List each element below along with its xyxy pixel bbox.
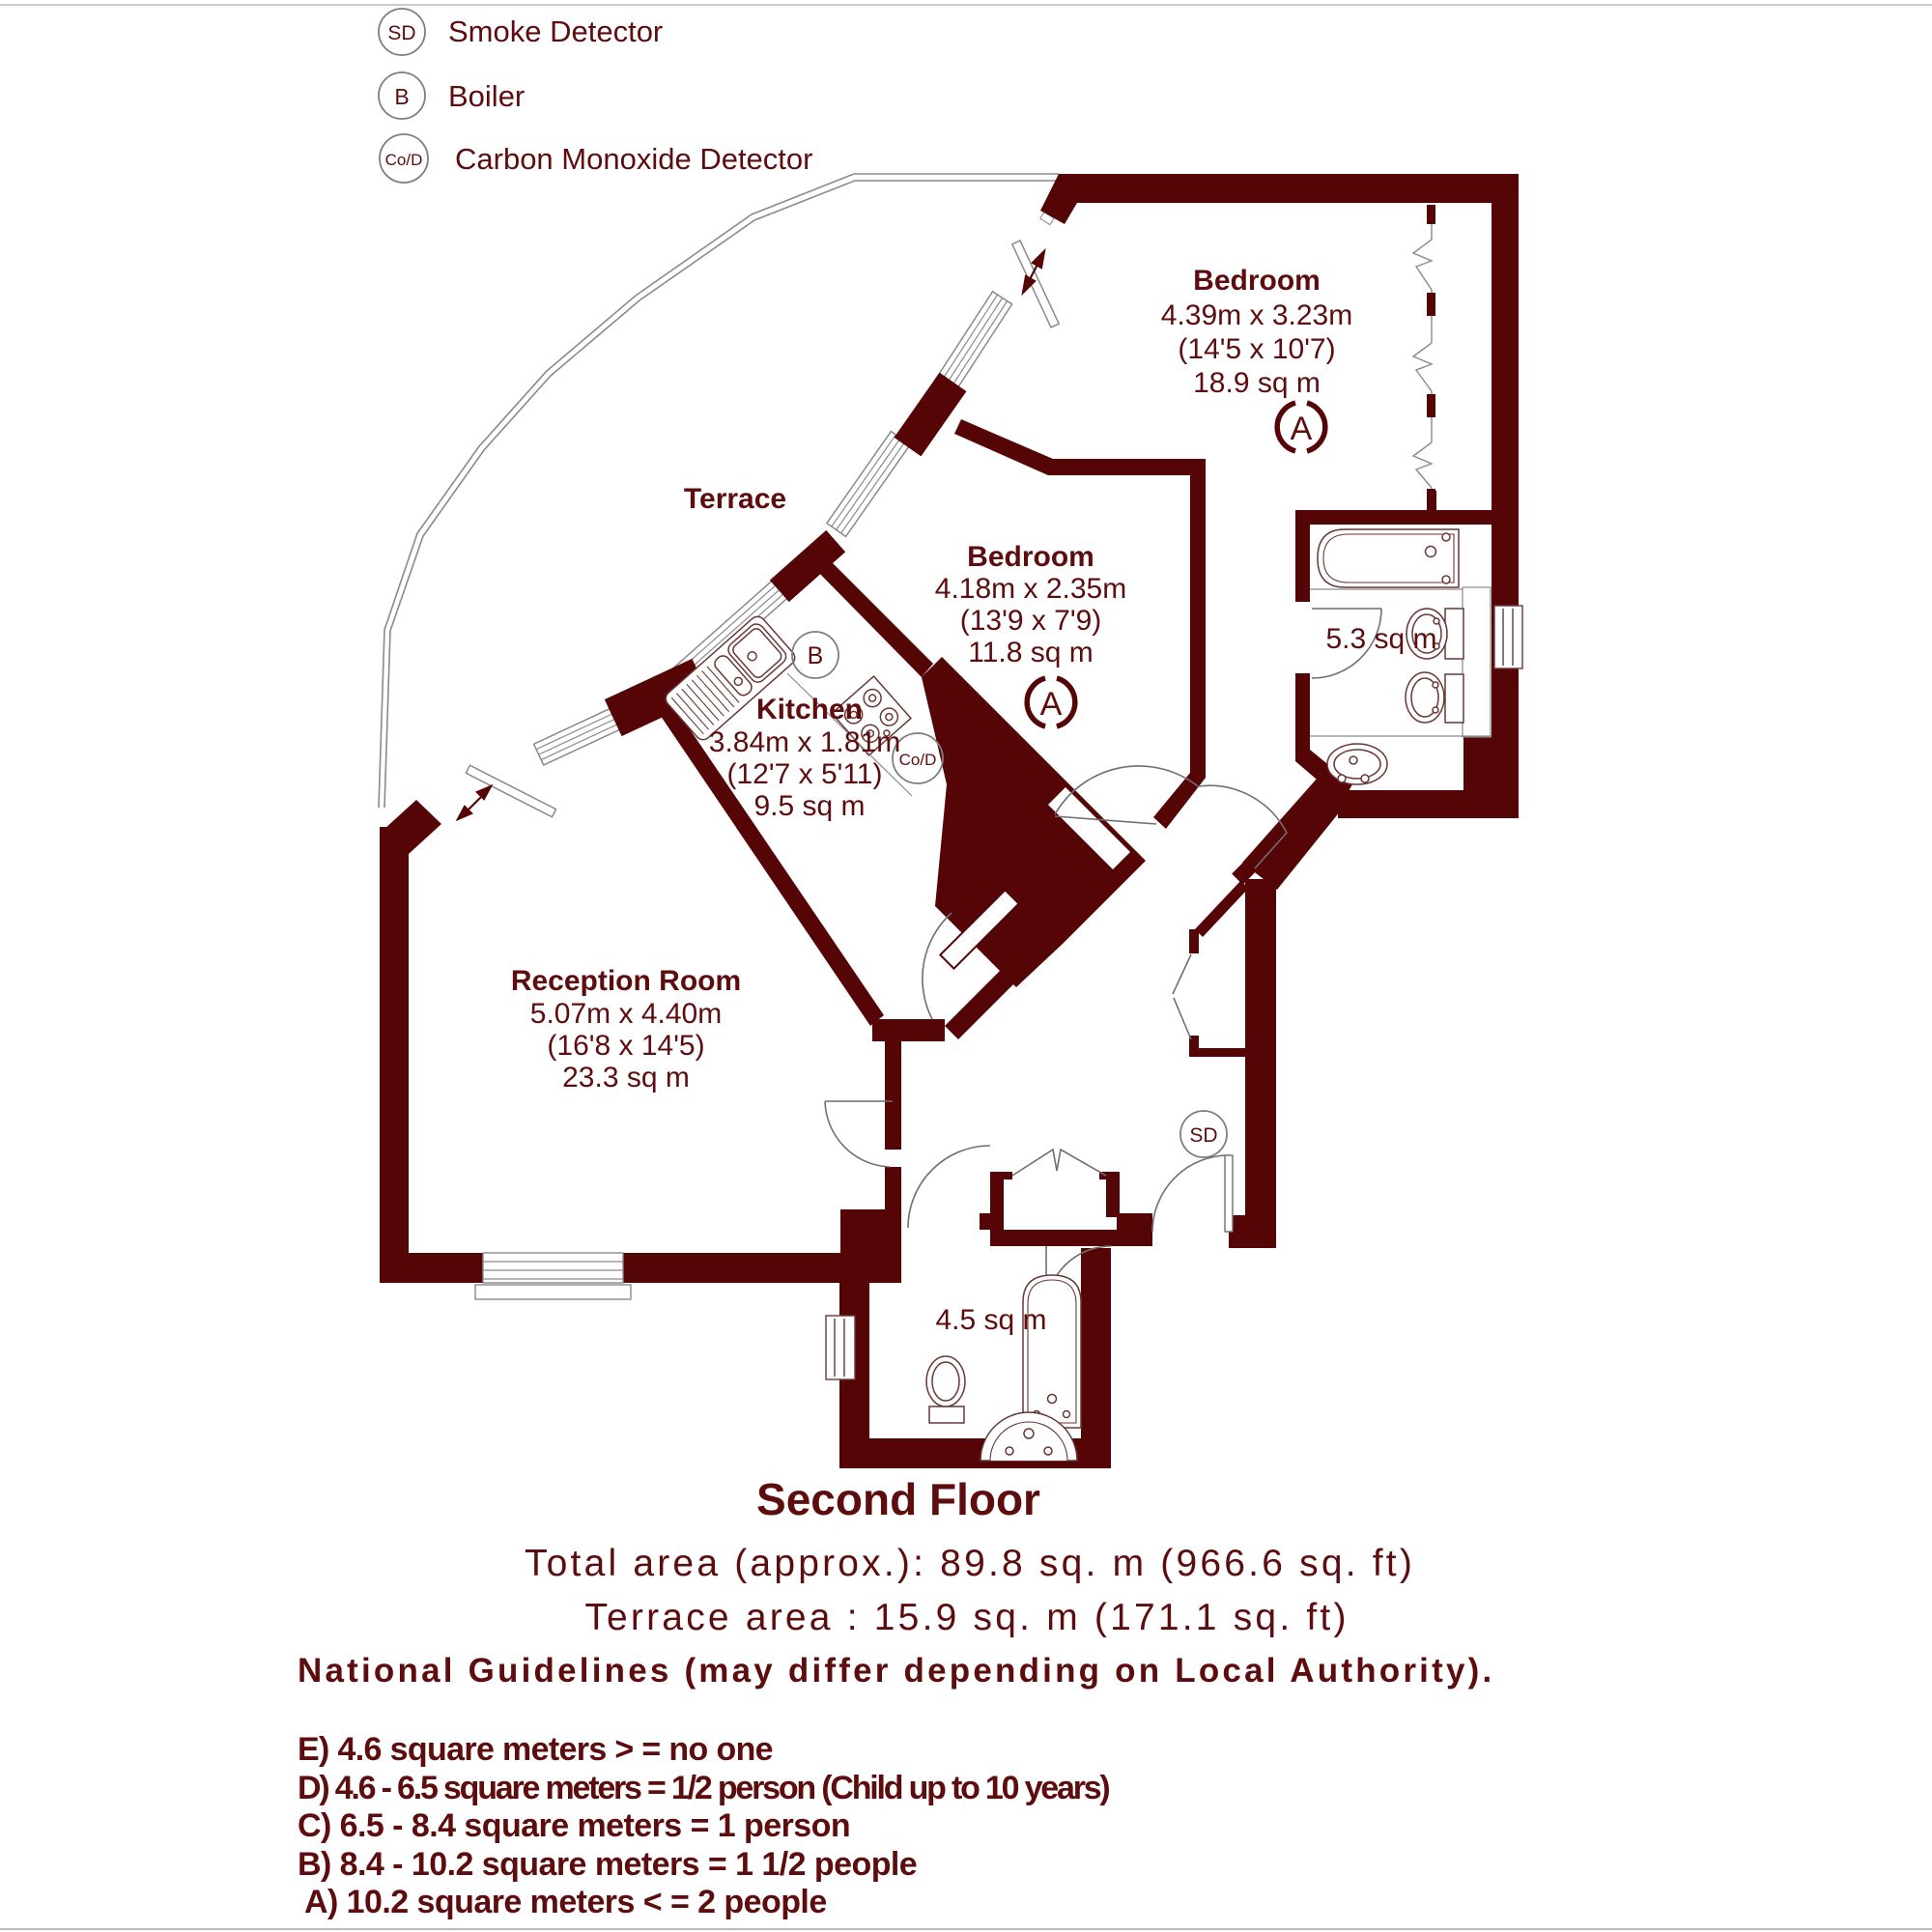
svg-text:Co/D: Co/D (899, 751, 937, 769)
svg-text:Second Floor: Second Floor (756, 1474, 1040, 1524)
svg-text:Boiler: Boiler (448, 79, 525, 113)
svg-text:B: B (394, 84, 409, 109)
svg-text:4.39m x 3.23m: 4.39m x 3.23m (1161, 299, 1352, 331)
svg-text:11.8 sq m: 11.8 sq m (968, 637, 1094, 668)
svg-text:Total area (approx.): 89.8 sq.: Total area (approx.): 89.8 sq. m (966.6 … (525, 1543, 1415, 1584)
svg-text:3.84m x 1.81m: 3.84m x 1.81m (709, 726, 900, 758)
svg-text:National Guidelines (may diffe: National Guidelines (may differ dependin… (298, 1652, 1494, 1690)
svg-text:4.5 sq m: 4.5 sq m (935, 1304, 1046, 1336)
svg-text:B) 8.4 - 10.2 square meters =: B) 8.4 - 10.2 square meters = 1 1/2 peop… (298, 1846, 917, 1883)
svg-text:B: B (808, 642, 824, 669)
svg-text:Co/D: Co/D (385, 151, 423, 169)
svg-text:(12'7 x 5'11): (12'7 x 5'11) (727, 758, 883, 790)
svg-text:SD: SD (1189, 1124, 1217, 1147)
svg-text:Terrace: Terrace (684, 483, 786, 515)
svg-text:A: A (1291, 411, 1313, 447)
svg-text:4.18m x 2.35m: 4.18m x 2.35m (935, 573, 1126, 605)
svg-text:D) 4.6 - 6.5 square meters = 1: D) 4.6 - 6.5 square meters = 1/2 person … (298, 1770, 1109, 1806)
svg-text:Bedroom: Bedroom (1193, 265, 1321, 297)
svg-text:23.3 sq m: 23.3 sq m (562, 1062, 690, 1094)
svg-text:5.07m x 4.40m: 5.07m x 4.40m (530, 998, 722, 1030)
svg-text:Terrace area : 15.9 sq. m (171: Terrace area : 15.9 sq. m (171.1 sq. ft) (584, 1597, 1349, 1638)
svg-text:Smoke Detector: Smoke Detector (448, 14, 663, 48)
svg-text:Reception Room: Reception Room (511, 965, 741, 997)
svg-text:(14'5 x 10'7): (14'5 x 10'7) (1178, 333, 1335, 365)
svg-text:Carbon Monoxide Detector: Carbon Monoxide Detector (455, 142, 812, 176)
svg-text:(16'8 x 14'5): (16'8 x 14'5) (547, 1030, 704, 1062)
svg-text:A) 10.2 square meters < = 2 pe: A) 10.2 square meters < = 2 people (304, 1884, 827, 1920)
svg-text:9.5 sq m: 9.5 sq m (753, 790, 865, 822)
svg-text:5.3 sq m: 5.3 sq m (1325, 623, 1436, 655)
svg-text:A: A (1040, 686, 1063, 723)
svg-text:Kitchen: Kitchen (756, 694, 863, 725)
svg-text:SD: SD (387, 22, 415, 44)
svg-text:Bedroom: Bedroom (967, 541, 1094, 573)
svg-text:C) 6.5 - 8.4 square meters = 1: C) 6.5 - 8.4 square meters = 1 person (298, 1807, 850, 1844)
svg-text:18.9 sq m: 18.9 sq m (1193, 367, 1321, 399)
svg-text:E) 4.6 square meters > = no on: E) 4.6 square meters > = no one (298, 1731, 773, 1768)
svg-text:(13'9 x 7'9): (13'9 x 7'9) (960, 605, 1102, 637)
